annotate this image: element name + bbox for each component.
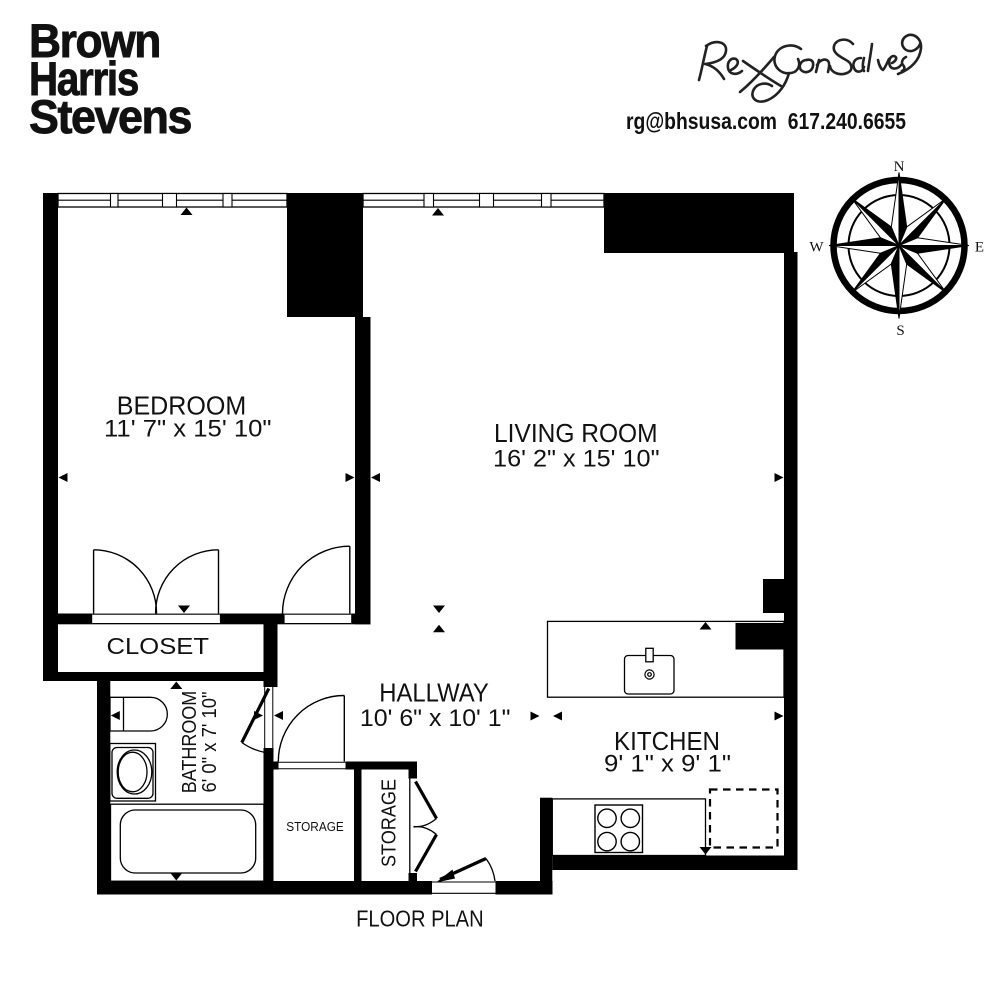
svg-text:W: W	[809, 240, 824, 256]
svg-text:16' 2" x 15' 10": 16' 2" x 15' 10"	[493, 446, 660, 473]
svg-text:E: E	[975, 240, 984, 256]
svg-text:BATHROOM: BATHROOM	[179, 691, 201, 794]
svg-text:S: S	[896, 323, 904, 339]
svg-text:rg@bhsusa.com 617.240.6655: rg@bhsusa.com 617.240.6655	[626, 108, 906, 134]
svg-text:STORAGE: STORAGE	[286, 819, 344, 834]
svg-text:9' 1" x 9' 1": 9' 1" x 9' 1"	[604, 751, 731, 778]
svg-text:FLOOR PLAN: FLOOR PLAN	[356, 906, 484, 932]
svg-text:HALLWAY: HALLWAY	[379, 678, 489, 708]
svg-text:N: N	[894, 159, 905, 175]
svg-text:11' 7" x 15' 10": 11' 7" x 15' 10"	[104, 416, 272, 443]
svg-text:Stevens: Stevens	[29, 90, 191, 143]
svg-text:6' 0" x 7' 10": 6' 0" x 7' 10"	[199, 692, 221, 793]
svg-text:CLOSET: CLOSET	[107, 633, 210, 659]
svg-text:STORAGE: STORAGE	[379, 779, 401, 867]
svg-text:LIVING ROOM: LIVING ROOM	[494, 418, 658, 448]
svg-text:10' 6" x 10' 1": 10' 6" x 10' 1"	[360, 705, 511, 732]
